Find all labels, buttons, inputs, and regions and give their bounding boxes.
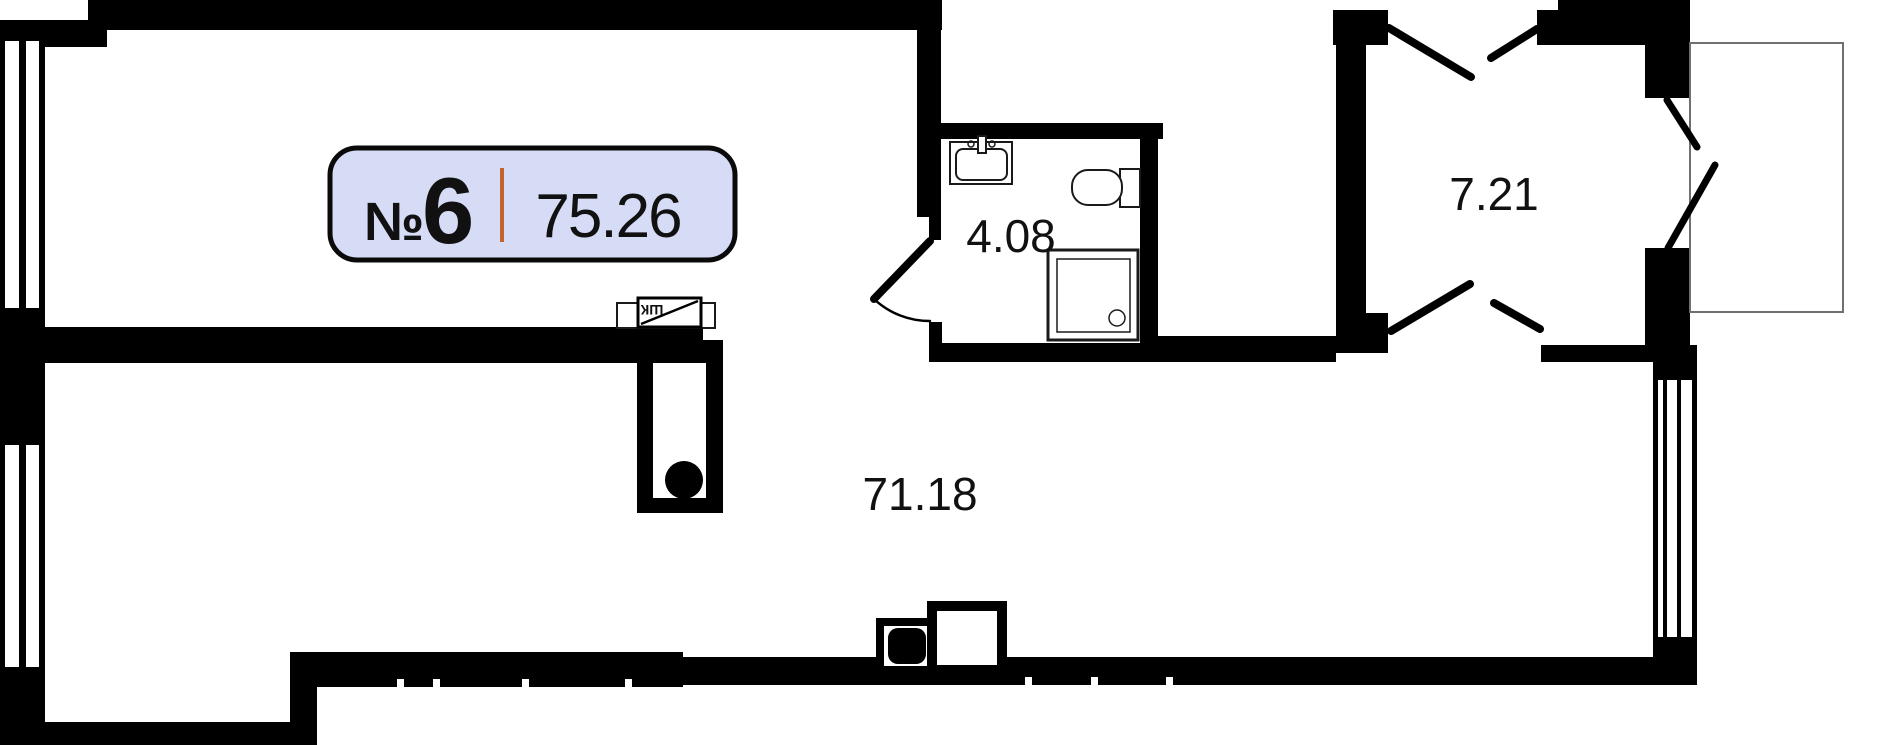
badge-number-sign: № <box>364 192 424 252</box>
wall-room-divider-narrow <box>929 217 941 240</box>
apartment-badge: № 6 75.26 <box>330 148 735 263</box>
wall-hall-left-column <box>1336 45 1366 315</box>
entry-door-leaf-right <box>1491 29 1537 58</box>
mullion-tick <box>397 679 404 688</box>
wall-bath-right <box>1140 123 1158 362</box>
balcony-door-leaf-bottom <box>1668 165 1715 248</box>
wall-room-divider-upper <box>917 27 941 217</box>
wall-hall-bottom-chunk <box>1336 313 1388 353</box>
wall-top <box>88 0 942 30</box>
hallway-area-label: 7.21 <box>1449 168 1539 220</box>
mullion-tick <box>1166 677 1173 686</box>
wall-band-right <box>1541 345 1653 362</box>
shaft-left-bar <box>637 363 653 500</box>
wall-entry-top-a <box>1537 10 1690 45</box>
mullion-tick <box>625 679 632 688</box>
badge-number: 6 <box>422 158 474 263</box>
wall-bottom-right <box>683 657 1697 685</box>
shaft-bottom-bar <box>637 498 723 513</box>
window-right-frame-a <box>1663 380 1667 637</box>
wall-hall-right-upper <box>1645 45 1690 98</box>
vent-shaft-icon <box>665 461 703 499</box>
toilet-icon <box>1072 169 1140 207</box>
balcony-outline <box>1690 43 1843 312</box>
wall-entry-top-b <box>1558 0 1690 12</box>
entry-door-leaf-left <box>1389 28 1471 77</box>
mullion-tick <box>433 679 440 688</box>
wardrobe-label: ШК <box>640 302 663 318</box>
main-area-label: 71.18 <box>862 468 977 520</box>
sink-tap <box>978 136 986 153</box>
window-left-upper-frame <box>19 41 26 308</box>
wall-bottom-left <box>45 722 295 745</box>
wardrobe-icon: ШК <box>617 298 715 328</box>
shower-icon <box>1048 250 1138 340</box>
bathroom-area-label: 4.08 <box>966 210 1056 262</box>
hall-door-leaf-right <box>1494 303 1540 329</box>
window-right-frame-b <box>1677 380 1681 637</box>
window-left-lower-frame <box>19 445 26 667</box>
windows <box>5 41 1692 688</box>
shower-drain <box>1109 310 1125 326</box>
mullion-tick <box>1091 677 1098 686</box>
wall-bath-bottom <box>929 343 1163 362</box>
wall-band-left <box>1158 336 1336 362</box>
walls <box>0 0 1697 745</box>
sink-icon <box>950 136 1012 184</box>
washer-drum <box>888 628 926 664</box>
equipment-box-icon <box>932 606 1002 670</box>
shower-outer <box>1048 250 1138 340</box>
bathroom-door-arc <box>874 299 930 321</box>
balcony-door-leaf-top <box>1667 100 1697 147</box>
wall-bottom-mid <box>293 652 683 687</box>
shaft-right-bar <box>706 342 723 513</box>
wall-interior <box>0 327 703 363</box>
wall-hall-right-lower <box>1645 248 1690 360</box>
badge-area-value: 75.26 <box>535 182 680 251</box>
mullion-tick <box>1025 677 1032 686</box>
bathroom-door-leaf <box>874 241 930 299</box>
wall-hall-top-chunk <box>1333 10 1388 45</box>
floor-plan-drawing: ШК 4.08 7.21 71.18 № 6 75.26 <box>0 0 1900 745</box>
floor-plan-page: ШК 4.08 7.21 71.18 № 6 75.26 <box>0 0 1900 745</box>
toilet-bowl <box>1072 170 1122 205</box>
wall-bath-top <box>941 123 1163 139</box>
mullion-tick <box>522 679 529 688</box>
hall-door-leaf-left <box>1391 284 1470 331</box>
wall-room-divider-lower <box>929 322 942 346</box>
